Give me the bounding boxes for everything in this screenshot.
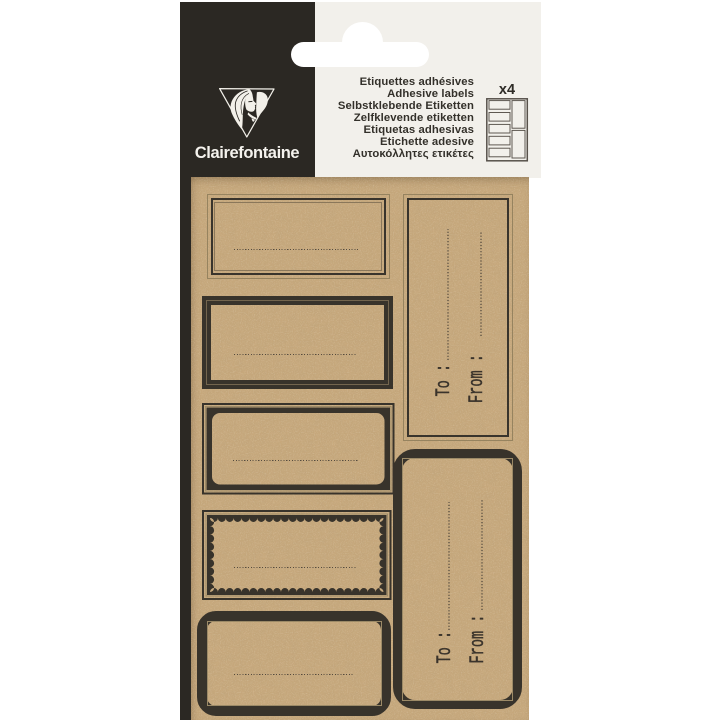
svg-text:To :: To : — [435, 631, 457, 664]
svg-text:From :: From : — [468, 615, 490, 664]
svg-text:From :: From : — [467, 354, 489, 403]
svg-text:To :: To : — [434, 364, 456, 397]
